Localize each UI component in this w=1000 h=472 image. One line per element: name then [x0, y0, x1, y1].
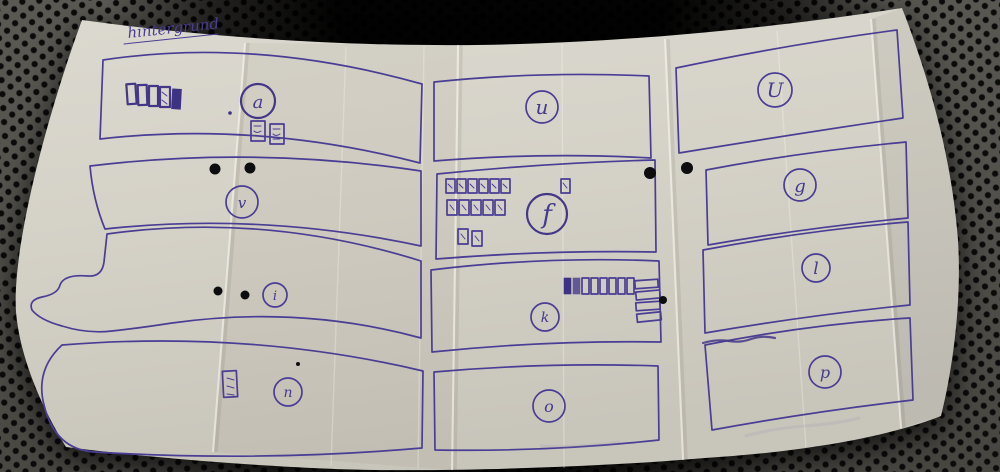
hole [644, 167, 656, 179]
panel-v-label: v [238, 194, 247, 212]
ink-speck [229, 112, 232, 115]
panel-U-label: U [767, 78, 785, 102]
panel-g-label: g [794, 176, 806, 197]
panel-u-label: u [536, 95, 549, 119]
hole [241, 291, 250, 300]
hole [681, 162, 693, 174]
tick-rect-filled [573, 278, 580, 294]
hole [210, 164, 221, 175]
photo-scene: hintergrund a u U [0, 0, 1000, 472]
panel-n-label: n [283, 385, 292, 401]
tick-rect-filled [171, 89, 181, 109]
hole [659, 296, 667, 304]
panel-l-label: l [813, 259, 818, 279]
drawing-layer: hintergrund a u U [0, 0, 1000, 472]
panel-a-label: a [253, 92, 264, 113]
panel-o-label: o [544, 397, 554, 416]
hole [245, 163, 256, 174]
panel-k-label: k [541, 310, 549, 326]
hole [214, 287, 223, 296]
tick-rect-filled [564, 278, 571, 294]
panel-i-label: i [273, 289, 277, 304]
panel-p-label: p [820, 363, 830, 382]
ink-speck [296, 362, 300, 366]
